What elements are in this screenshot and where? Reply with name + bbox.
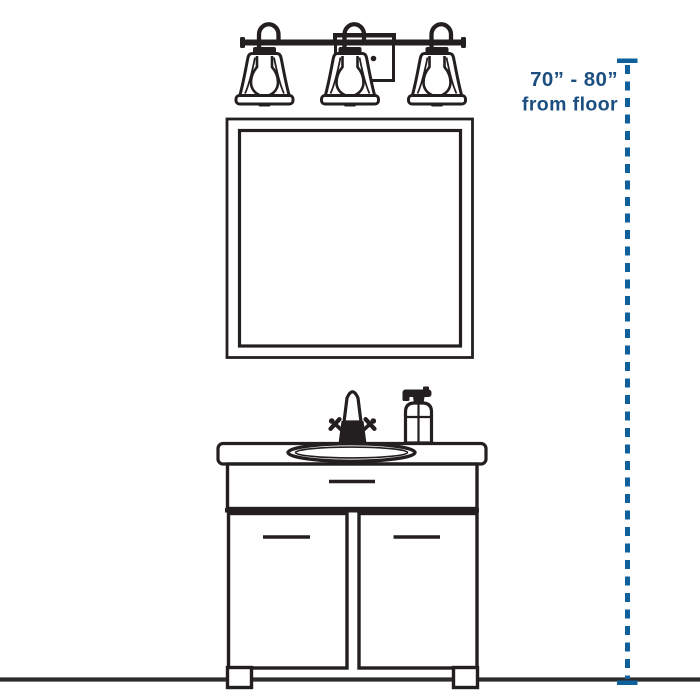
light-shade-left (236, 47, 293, 107)
vanity-diagram-canvas: 70” - 80” from floor (0, 0, 700, 700)
light-shade-right (409, 47, 466, 107)
soap-pump-spout-tip (403, 393, 410, 402)
mirror (227, 119, 473, 358)
faucet-spout (344, 392, 361, 422)
dimension-cap-bottom (617, 681, 638, 686)
bar-endcap-right (461, 37, 466, 48)
dimension-label-from-floor: from floor (522, 94, 618, 116)
cabinet-foot-right (454, 668, 478, 688)
dimension-label-range: 70” - 80” (530, 68, 618, 91)
faucet (329, 392, 376, 444)
dimension-cap-top (617, 59, 638, 64)
cabinet-foot-left (228, 668, 252, 688)
bar-endcap-left (240, 37, 245, 48)
drawer-front (228, 464, 478, 509)
bar-rail (243, 40, 464, 46)
countertop (218, 444, 486, 465)
soap-dispenser (403, 387, 432, 444)
vanity-light-fixture (236, 24, 466, 106)
diagram-stage: 70” - 80” from floor (0, 0, 700, 700)
mirror-inner-frame (240, 131, 461, 347)
backplate-screw (371, 56, 377, 62)
vanity-cabinet (225, 464, 479, 668)
height-dimension: 70” - 80” from floor (522, 59, 638, 686)
